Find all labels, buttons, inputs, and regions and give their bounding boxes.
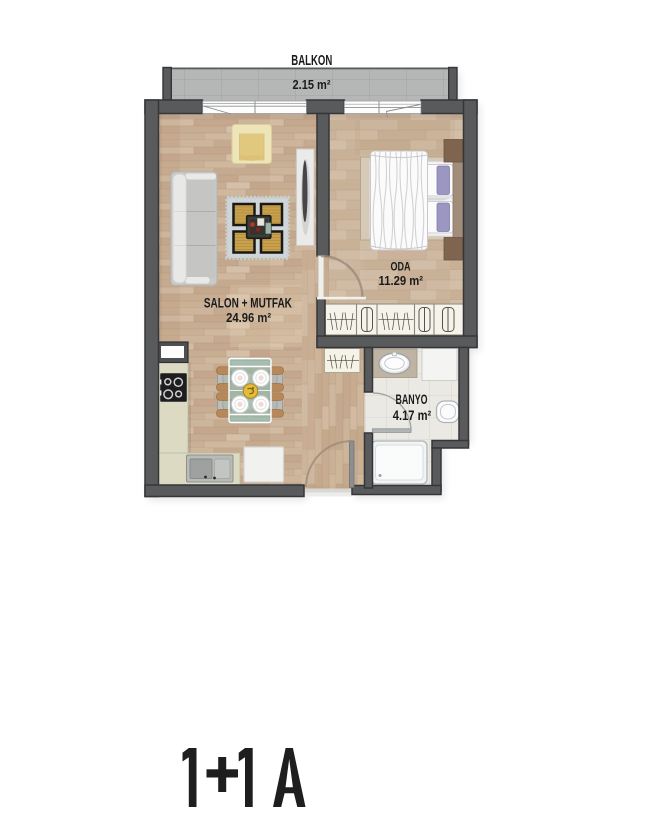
svg-text:BALKON: BALKON xyxy=(291,53,332,69)
svg-text:SALON + MUTFAK: SALON + MUTFAK xyxy=(204,296,292,311)
svg-text:BANYO: BANYO xyxy=(396,392,428,407)
svg-text:24.96 m²: 24.96 m² xyxy=(226,311,271,325)
svg-text:ODA: ODA xyxy=(391,259,411,273)
svg-text:11.29 m²: 11.29 m² xyxy=(379,274,424,288)
svg-text:2.15 m²: 2.15 m² xyxy=(293,78,331,92)
svg-text:4.17 m²: 4.17 m² xyxy=(393,408,432,423)
